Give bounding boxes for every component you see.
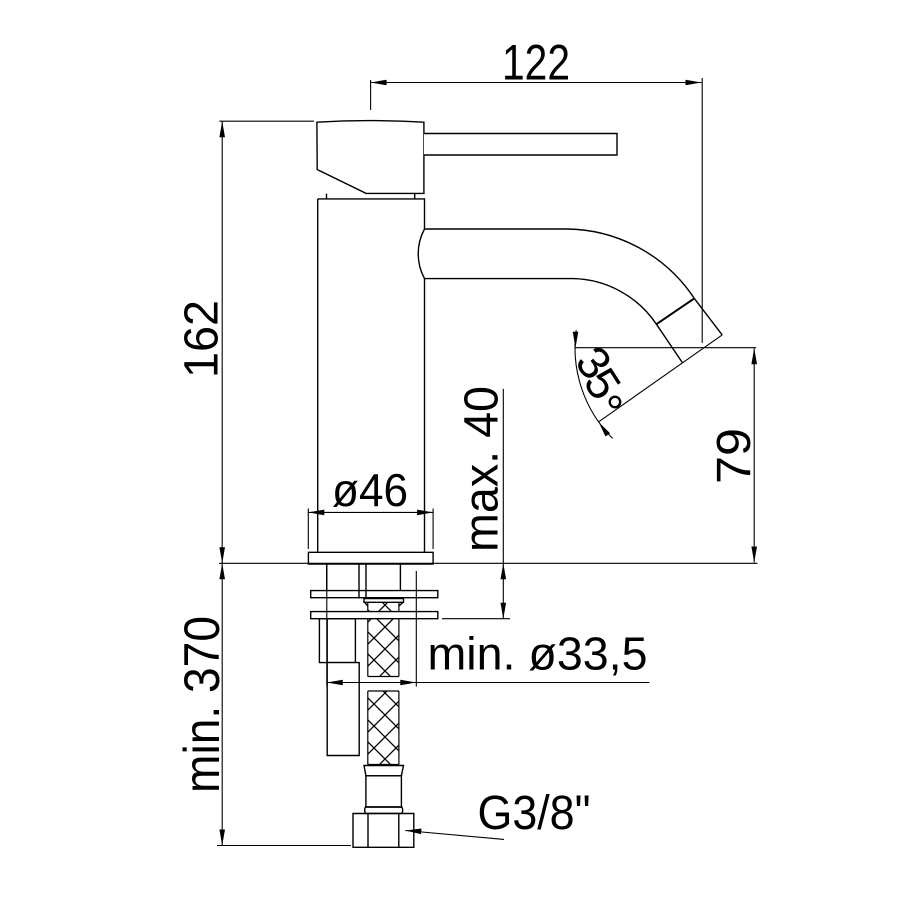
svg-text:79: 79 [708,428,761,484]
svg-text:162: 162 [176,300,229,378]
svg-text:max. 40: max. 40 [456,386,509,552]
svg-text:ø46: ø46 [332,464,408,516]
svg-text:min. ø33,5: min. ø33,5 [428,627,648,679]
svg-text:min. 370: min. 370 [174,616,230,793]
svg-text:122: 122 [502,35,570,91]
svg-text:G3/8": G3/8" [478,787,591,840]
